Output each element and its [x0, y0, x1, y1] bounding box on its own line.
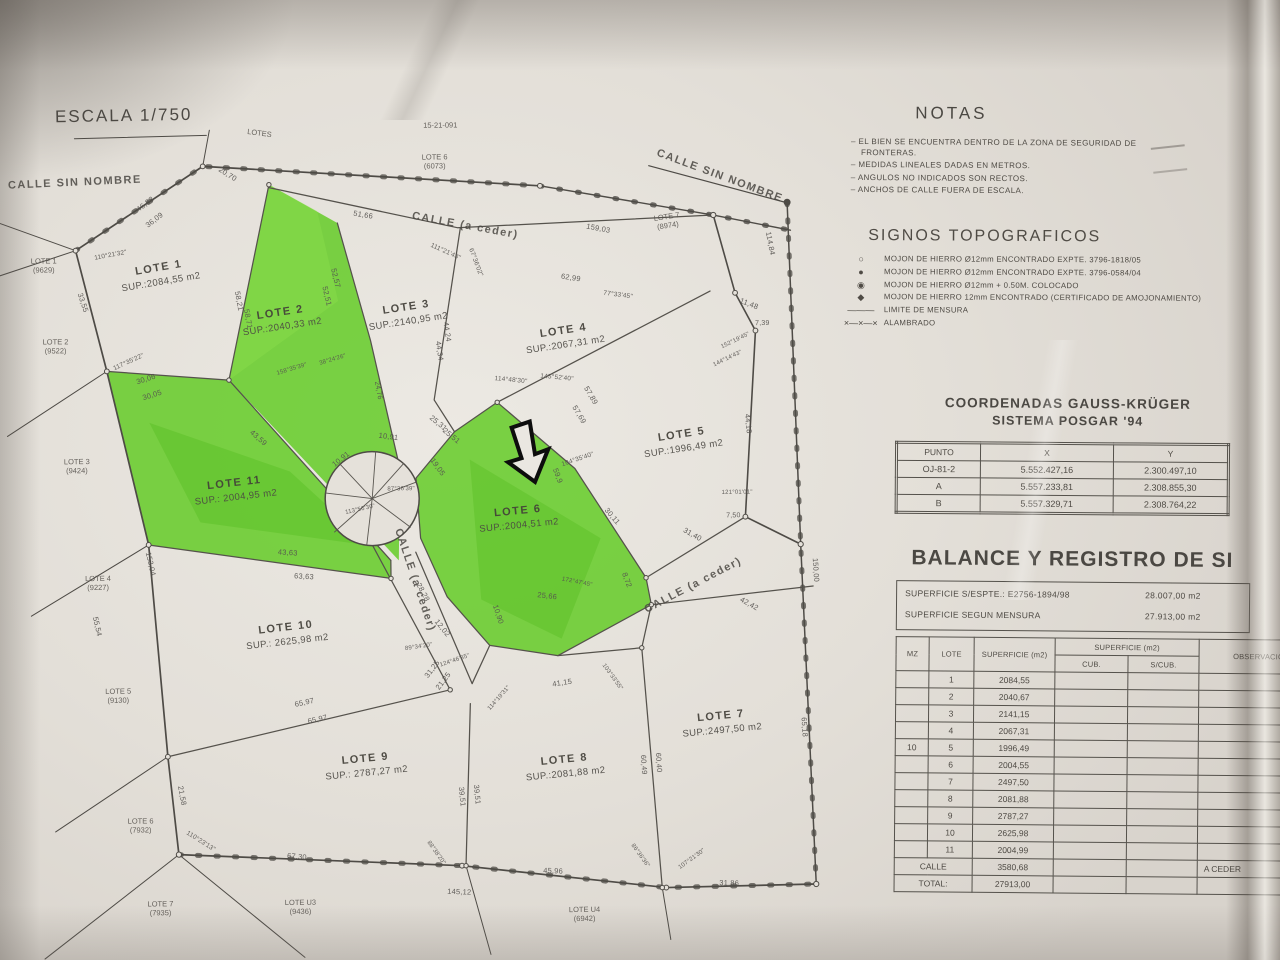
measurement-label: 44,24 — [442, 321, 454, 342]
measurement-label: 60,49 — [639, 755, 649, 775]
measurement-label: 117°35'22" — [112, 352, 145, 372]
obs-cell — [1198, 792, 1280, 810]
measurement-label: 57,69 — [570, 404, 588, 426]
cub-cell — [1054, 757, 1127, 775]
measurement-label: 124°46'35" — [439, 653, 470, 669]
measurement-label: 20,70 — [217, 165, 239, 183]
cub-cell — [1054, 740, 1127, 758]
col-observaciones: OBSERVACIONES — [1199, 639, 1280, 674]
measurement-label: 52,51 — [320, 285, 333, 306]
obs-cell — [1197, 843, 1280, 861]
coords-cell: 2.300.497,10 — [1113, 462, 1228, 480]
measurement-label: 31,25 — [422, 658, 441, 679]
neighbor-lot-label: LOTE 4(9227) — [85, 575, 111, 592]
legend-symbol-icon: ◉ — [838, 278, 884, 291]
scanned-survey-plan: LOTE 1SUP.:2084,55 m2LOTE 2SUP.:2040,33 … — [0, 0, 1280, 960]
measurement-label: 59,9 — [551, 467, 565, 485]
measurement-label: 65,97 — [307, 713, 328, 726]
legend-symbol-icon: ——— — [838, 304, 884, 317]
coordinates-subtitle: SISTEMA POSGAR '94 — [895, 413, 1240, 429]
mz-cell — [895, 705, 928, 722]
neighbor-lot-label: LOTE 2(9522) — [43, 338, 69, 355]
col-cub: CUB. — [1055, 655, 1128, 673]
measurement-label: 43,63 — [278, 547, 298, 557]
coords-cell: B — [896, 494, 980, 513]
surface-expte-value: 28.007,00 m2 — [1145, 590, 1201, 600]
mz-cell: 10 — [895, 739, 928, 756]
measurement-label: 172°47'45" — [561, 576, 593, 588]
measurement-label: 58,21 — [233, 290, 245, 311]
lote-cell: 2 — [929, 688, 974, 705]
measurement-label: 159,03 — [586, 222, 611, 235]
coordinates-header-row: PUNTO X Y — [896, 442, 1228, 462]
cub-cell — [1054, 774, 1127, 792]
scub-cell — [1127, 792, 1198, 810]
street-label: CALLE (a ceder) — [411, 210, 519, 241]
notes-list: – EL BIEN SE ENCUENTRA DENTRO DE LA ZONA… — [845, 137, 1165, 198]
col-scub: S/CUB. — [1128, 656, 1199, 674]
measurement-label: 121°01'01" — [722, 490, 753, 496]
measurement-label: 113°56'30" — [345, 503, 376, 516]
measurement-label: 57,89 — [582, 385, 600, 407]
obs-cell — [1198, 741, 1280, 759]
measurement-label: 24,76 — [373, 381, 383, 401]
legend-symbol-icon: ● — [838, 266, 884, 279]
cub-cell — [1053, 825, 1126, 843]
mz-cell — [895, 756, 928, 773]
superficie-cell: 2004,99 — [972, 841, 1053, 859]
nota-item: – ANCHOS DE CALLE FUERA DE ESCALA. — [845, 185, 1161, 198]
neighbor-lot-label: LOTE U3(9436) — [285, 899, 316, 916]
superficie-cell: 2084,55 — [974, 671, 1055, 689]
street-label: CALLE SIN NOMBRE — [8, 174, 142, 192]
measurement-label: 10,90 — [491, 603, 506, 625]
measurement-label: 107°21'30" — [678, 848, 707, 871]
balance-table: MZ LOTE SUPERFICIE (m2) SUPERFICIE (m2) … — [893, 636, 1280, 896]
measurement-label: 55,54 — [91, 616, 104, 637]
measurement-label: 144°14'43" — [712, 349, 743, 368]
neighbor-lot-label: LOTE U4(6942) — [569, 906, 600, 923]
coords-cell: 5.552.427,16 — [980, 461, 1113, 479]
mz-cell — [895, 790, 928, 807]
lot-label: LOTE 4SUP.:2067,31 m2 — [523, 319, 606, 357]
obs-cell — [1198, 775, 1280, 793]
col-superficie: SUPERFICIE (m2) — [974, 637, 1055, 672]
legend-item-label: ALAMBRADO — [884, 317, 1258, 332]
measurement-label: 104°35'40" — [561, 451, 595, 468]
measurement-label: 41,15 — [552, 677, 573, 689]
neighbor-ref: (7932) — [128, 826, 154, 835]
measurement-label: 44,18 — [743, 413, 754, 434]
cub-cell — [1055, 672, 1128, 690]
balance-title: BALANCE Y REGISTRO DE SI — [911, 546, 1280, 574]
measurement-label: 145°52'40" — [540, 373, 574, 383]
mz-cell — [896, 688, 929, 705]
street-label: CALLE (a ceder) — [642, 555, 743, 616]
superficie-cell: 2625,98 — [972, 824, 1053, 842]
obs-cell — [1199, 673, 1280, 691]
measurement-label: 62,99 — [560, 272, 581, 284]
scub-cell — [1127, 809, 1198, 827]
obs-cell — [1198, 724, 1280, 742]
cub-cell — [1054, 723, 1127, 741]
cub-cell — [1053, 842, 1126, 860]
measurement-label: 63,63 — [294, 571, 314, 581]
measurement-label: 65,97 — [294, 696, 315, 709]
measurement-label: 21,58 — [176, 785, 188, 806]
measurement-label: 88°38'20" — [425, 840, 446, 866]
measurement-label: 25,51 — [441, 426, 462, 446]
measurement-label: 30,05 — [141, 388, 163, 403]
scub-cell — [1128, 690, 1199, 708]
obs-cell — [1199, 690, 1280, 708]
scale-label: ESCALA 1/750 — [55, 105, 193, 127]
measurement-label: 8,72 — [620, 571, 634, 589]
lote-cell: 5 — [928, 739, 973, 756]
measurement-label: 31,40 — [682, 525, 704, 543]
notes-title: NOTAS — [915, 103, 1165, 125]
notes-panel: NOTAS – EL BIEN SE ENCUENTRA DENTRO DE L… — [845, 103, 1166, 200]
measurement-label: 43,59 — [248, 428, 269, 448]
superficie-cell: 2081,88 — [973, 790, 1054, 808]
lote-cell: 11 — [927, 841, 972, 858]
measurement-label: 152°19'45" — [720, 331, 751, 350]
measurement-label: 145,12 — [447, 887, 471, 897]
mz-cell — [896, 671, 929, 688]
superficie-cell: 2141,15 — [973, 705, 1054, 723]
measurement-label: 111°21'43" — [429, 242, 461, 262]
scub-cell — [1127, 707, 1198, 725]
measurement-label: 103°33'55" — [601, 663, 624, 692]
measurement-label: 10,91 — [330, 449, 351, 468]
cadastral-map: LOTE 1SUP.:2084,55 m2LOTE 2SUP.:2040,33 … — [0, 0, 865, 960]
nota-item: – EL BIEN SE ENCUENTRA DENTRO DE LA ZONA… — [845, 137, 1161, 160]
measurement-label: 51,66 — [353, 209, 374, 221]
coords-cell: A — [896, 477, 980, 495]
cub-cell — [1054, 791, 1127, 809]
measurement-label: 42,42 — [738, 595, 760, 613]
col-punto: PUNTO — [896, 442, 980, 461]
nota-item: – ANGULOS NO INDICADOS SON RECTOS. — [845, 172, 1161, 185]
measurement-label: 114,84 — [764, 231, 777, 256]
neighbor-ref: (8974) — [655, 220, 682, 232]
superficie-cell: 2067,31 — [973, 722, 1054, 740]
scub-cell — [1126, 826, 1197, 844]
obs-cell — [1198, 758, 1280, 776]
col-mz: MZ — [896, 637, 929, 671]
neighbor-name: 15-21-091 — [423, 121, 457, 130]
measurement-label: 60,40 — [654, 752, 664, 772]
coords-cell: OJ-81-2 — [896, 460, 980, 478]
measurement-label: 67,30 — [287, 851, 308, 862]
street-label: CALLE (a ceder) — [392, 527, 438, 633]
lote-cell: 9 — [928, 807, 973, 824]
lot-label: LOTE 8SUP.:2081,88 m2 — [524, 750, 606, 784]
neighbor-lot-label: LOTES — [247, 128, 272, 140]
cub-cell — [1054, 808, 1127, 826]
lote-cell: 10 — [927, 824, 972, 841]
obs-cell — [1198, 707, 1280, 725]
coordinates-table: PUNTO X Y OJ-81-25.552.427,162.300.497,1… — [895, 441, 1231, 516]
cub-cell — [1054, 706, 1127, 724]
measurement-label: 77°33'45" — [603, 290, 633, 301]
measurement-label: 110°23'13" — [185, 830, 217, 854]
measurement-label: 67°36'02" — [467, 247, 484, 277]
measurement-label: 158°35'39" — [276, 362, 307, 377]
measurement-label: 114°48'30" — [494, 375, 527, 385]
lot-label: LOTE 1SUP.:2084,55 m2 — [118, 255, 201, 294]
measurement-label: 25,66 — [537, 590, 558, 601]
measurement-label: 10,91 — [378, 431, 399, 442]
lote-cell: 7 — [928, 773, 973, 790]
measurement-label: 19,05 — [428, 456, 447, 477]
superficie-cell: 2004,55 — [973, 756, 1054, 774]
neighbor-lot-label: LOTE 7(7935) — [147, 900, 173, 917]
mz-cell — [894, 824, 927, 841]
measurement-label: 31,86 — [719, 878, 739, 887]
scub-cell — [1127, 741, 1198, 759]
neighbor-ref: (6073) — [422, 162, 448, 171]
balance-panel: BALANCE Y REGISTRO DE SI SUPERFICIE S/ES… — [893, 546, 1280, 896]
lote-cell: 6 — [928, 756, 973, 773]
superficie-cell: 1996,49 — [973, 739, 1054, 757]
legend-symbol-icon: ○ — [838, 253, 884, 266]
measurement-label: 52,57 — [329, 267, 342, 288]
measurement-label: 38°24'26" — [319, 353, 347, 367]
lote-cell: 1 — [929, 671, 974, 688]
neighbor-ref: (7935) — [148, 909, 174, 918]
coordinates-panel: COORDENADAS GAUSS-KRÜGER SISTEMA POSGAR … — [895, 395, 1241, 516]
lot-label: LOTE 9SUP.: 2787,27 m2 — [324, 749, 409, 783]
neighbor-lot-label: LOTE 3(9424) — [64, 458, 90, 475]
measurement-label: 110°21'32" — [94, 249, 128, 262]
mz-cell — [894, 841, 927, 858]
cub-cell — [1055, 689, 1128, 707]
measurement-label: 46,83 — [135, 194, 156, 213]
legend-symbol-icon: ◆ — [838, 291, 884, 304]
coords-cell: 5.557.329,71 — [980, 495, 1113, 514]
nota-item: – MEDIDAS LINEALES DADAS EN METROS. — [845, 160, 1161, 173]
measurement-label: 7,39 — [755, 320, 770, 327]
lot-label: LOTE 3SUP.:2140,95 m2 — [366, 295, 449, 333]
neighbor-ref: (6942) — [569, 914, 600, 923]
coords-cell: 5.557.233,81 — [980, 478, 1113, 496]
mz-cell — [895, 722, 928, 739]
lot-label: LOTE 6SUP.:2004,51 m2 — [477, 501, 559, 535]
measurement-label: 39,51 — [457, 786, 468, 807]
superficie-cell: 2787,27 — [973, 807, 1054, 825]
measurement-label: 33,55 — [76, 292, 91, 314]
neighbor-lot-label: LOTE 5(9130) — [105, 688, 131, 705]
neighbor-lot-label: LOTE 6(6073) — [422, 153, 448, 170]
street-label: CALLE SIN NOMBRE — [655, 147, 785, 205]
col-superficie-group: SUPERFICIE (m2) — [1055, 638, 1199, 656]
measurement-label: 7,50 — [726, 512, 741, 519]
measurement-label: 87°36'39" — [387, 486, 415, 492]
neighbor-lot-label: 15-21-091 — [423, 121, 457, 130]
surface-mensura-label: SUPERFICIE SEGUN MENSURA — [905, 609, 1041, 620]
measurement-label: 150,00 — [811, 558, 821, 583]
obs-cell — [1198, 809, 1280, 827]
measurement-label: 44,34 — [434, 340, 446, 361]
neighbor-ref: (9629) — [31, 266, 57, 275]
legend-title: SIGNOS TOPOGRAFICOS — [868, 227, 1258, 247]
measurement-label: 86°36'36" — [630, 843, 651, 869]
scub-cell — [1127, 758, 1198, 776]
map-annotations: LOTE 1SUP.:2084,55 m2LOTE 2SUP.:2040,33 … — [0, 0, 865, 960]
obs-cell — [1197, 826, 1280, 844]
measurement-label: 11,48 — [739, 296, 760, 311]
scub-cell — [1127, 775, 1198, 793]
scub-cell — [1126, 843, 1197, 861]
neighbor-ref: (9227) — [85, 583, 111, 592]
measurement-label: 21,25 — [434, 670, 453, 691]
measurement-label: 89°34'20" — [405, 642, 433, 652]
surface-mensura-value: 27.913,00 m2 — [1145, 611, 1201, 621]
neighbor-lot-label: LOTE 7(8974) — [653, 211, 681, 232]
lote-cell: 4 — [928, 722, 973, 739]
col-y: Y — [1113, 444, 1228, 463]
scub-cell — [1128, 673, 1199, 691]
lot-label: LOTE 10SUP.: 2625,98 m2 — [244, 617, 329, 652]
measurement-label: 39,51 — [472, 784, 483, 805]
neighbor-ref: (9424) — [64, 467, 90, 476]
lot-label: LOTE 5SUP.:1996,49 m2 — [641, 423, 724, 461]
col-lote: LOTE — [929, 637, 974, 671]
lote-cell: 8 — [928, 790, 973, 807]
coords-cell: 2.308.764,22 — [1113, 496, 1228, 515]
neighbor-ref: (9436) — [285, 907, 316, 916]
measurement-label: 36,09 — [144, 210, 165, 229]
total-row: TOTAL: 27913,00 — [894, 875, 1280, 896]
surface-summary-box: SUPERFICIE S/ESPTE.: E2756-1894/98 28.00… — [896, 580, 1250, 633]
mz-cell — [895, 773, 928, 790]
neighbor-name: LOTES — [247, 128, 272, 140]
calle-observation: A CEDER — [1197, 860, 1280, 878]
measurement-label: 114°19'31" — [487, 685, 512, 712]
superficie-cell: 2497,50 — [973, 773, 1054, 791]
lot-label: LOTE 11SUP.: 2004,95 m2 — [192, 472, 277, 507]
neighbor-lot-label: LOTE 1(9629) — [31, 257, 57, 274]
mz-cell — [895, 807, 928, 824]
lot-label: LOTE 7SUP.:2497,50 m2 — [681, 706, 763, 740]
coords-row: B5.557.329,712.308.764,22 — [896, 494, 1228, 514]
topographic-legend-panel: SIGNOS TOPOGRAFICOS ○MOJON DE HIERRO Ø12… — [838, 227, 1259, 332]
lote-cell: 3 — [928, 705, 973, 722]
measurement-label: 30,06 — [135, 372, 157, 387]
measurement-label: 65,18 — [799, 717, 809, 737]
legend-list: ○MOJON DE HIERRO Ø12mm ENCONTRADO EXPTE.… — [838, 253, 1258, 332]
col-x: X — [980, 443, 1113, 462]
neighbor-ref: (9522) — [43, 347, 69, 356]
neighbor-lot-label: LOTE 6(7932) — [128, 817, 154, 834]
measurement-label: 153,04 — [144, 551, 158, 577]
scub-cell — [1127, 724, 1198, 742]
surface-expte-label: SUPERFICIE S/ESPTE.: E2756-1894/98 — [905, 588, 1070, 599]
coords-cell: 2.308.855,30 — [1113, 479, 1228, 497]
legend-symbol-icon: ×—×—× — [838, 317, 884, 330]
measurement-label: 45,96 — [543, 866, 563, 876]
legend-item: ×—×—×ALAMBRADO — [838, 317, 1258, 332]
measurement-label: 30,11 — [603, 506, 622, 526]
superficie-cell: 2040,67 — [974, 688, 1055, 706]
neighbor-ref: (9130) — [105, 696, 131, 705]
coordinates-title: COORDENADAS GAUSS-KRÜGER — [895, 395, 1240, 412]
